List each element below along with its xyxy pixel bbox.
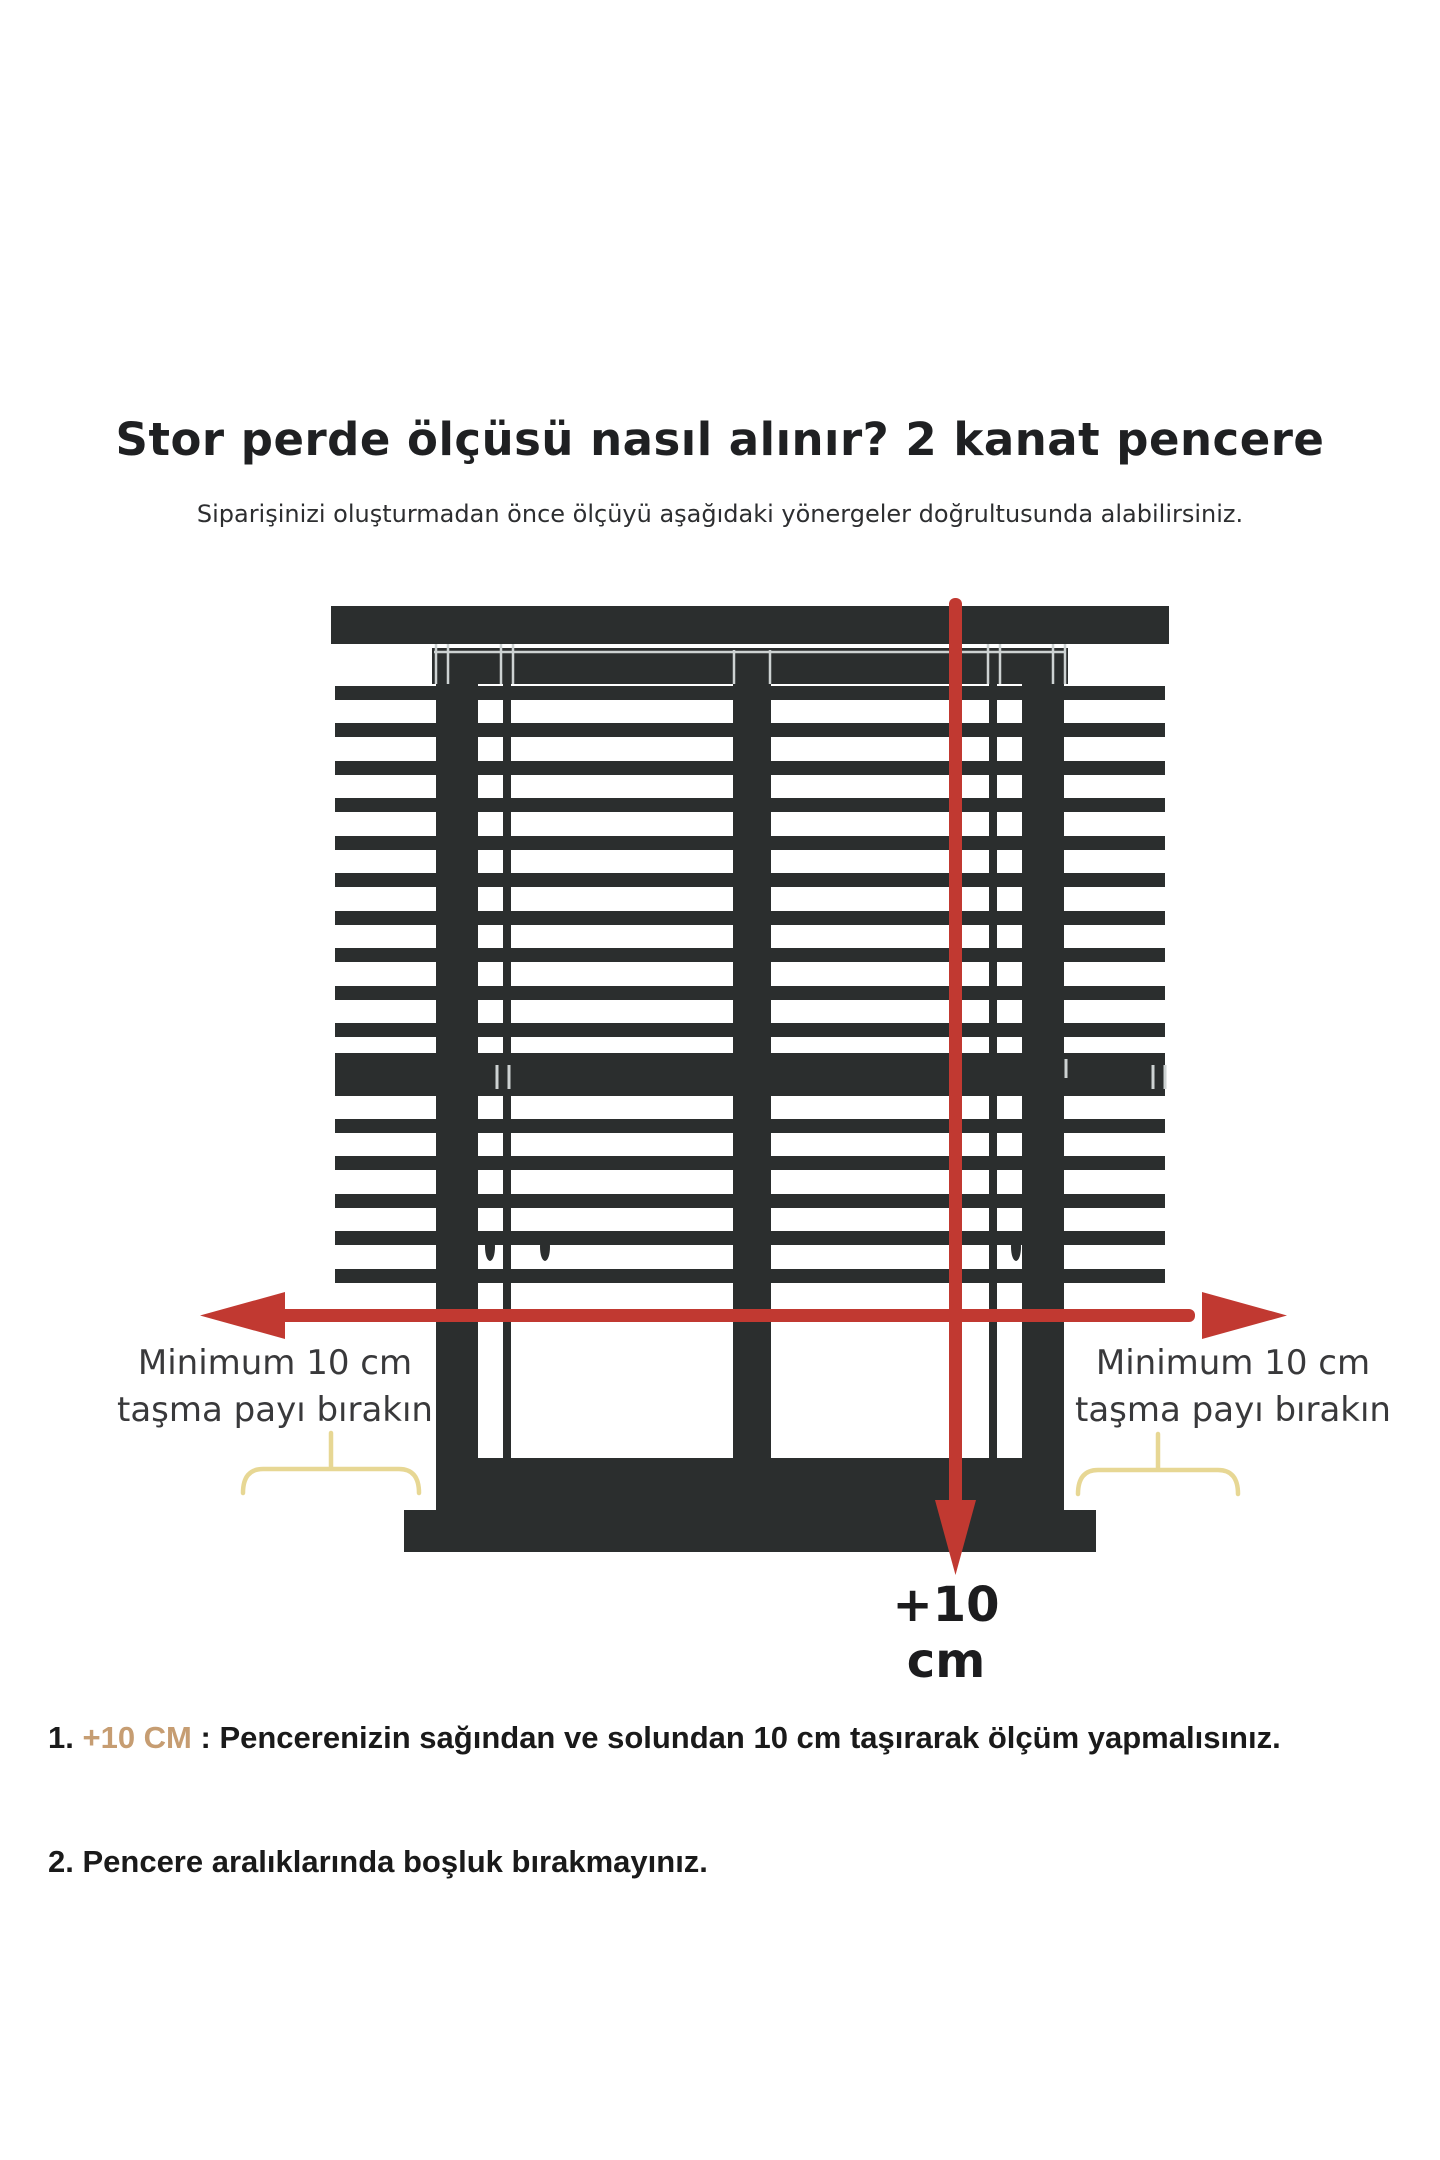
blind-slat bbox=[335, 686, 1165, 700]
right-overhang-bracket bbox=[1078, 1434, 1238, 1494]
left-overhang-bracket bbox=[243, 1433, 419, 1493]
blind-slat bbox=[335, 986, 1165, 1000]
right-overhang-label-line1: Minimum 10 cm bbox=[1053, 1340, 1413, 1387]
blind-slat bbox=[335, 798, 1165, 812]
blind-slat bbox=[335, 836, 1165, 850]
left-overhang-label: Minimum 10 cm taşma payı bırakın bbox=[95, 1340, 455, 1434]
blind-slat bbox=[335, 873, 1165, 887]
width-arrow-shaft bbox=[250, 1309, 1195, 1322]
left-overhang-label-line2: taşma payı bırakın bbox=[95, 1387, 455, 1434]
window-frame bbox=[404, 648, 1096, 1552]
note-1: 1. +10 CM : Pencerenizin sağından ve sol… bbox=[48, 1717, 1408, 1759]
blind-slat bbox=[335, 1156, 1165, 1170]
right-overhang-label: Minimum 10 cm taşma payı bırakın bbox=[1053, 1340, 1413, 1434]
note-1-highlight: +10 CM bbox=[82, 1720, 191, 1755]
note-1-text: : Pencerenizin sağından ve solundan 10 c… bbox=[192, 1720, 1281, 1755]
note-2-number: 2. bbox=[48, 1844, 82, 1879]
width-arrow-right-head bbox=[1202, 1292, 1287, 1339]
blind-slat bbox=[335, 911, 1165, 925]
blind-slat bbox=[335, 1269, 1165, 1283]
width-arrow-left-head bbox=[200, 1292, 285, 1339]
blind-slat bbox=[335, 948, 1165, 962]
cord-pull bbox=[485, 1233, 495, 1261]
blind-slat bbox=[335, 1194, 1165, 1208]
blind-headrail bbox=[331, 606, 1169, 644]
blind-slat bbox=[335, 723, 1165, 737]
right-overhang-label-line2: taşma payı bırakın bbox=[1053, 1387, 1413, 1434]
cord-pull bbox=[540, 1233, 550, 1261]
blind-bottom-rail-slat bbox=[335, 1053, 1165, 1096]
note-2: 2. Pencere aralıklarında boşluk bırakmay… bbox=[48, 1841, 1408, 1883]
left-overhang-label-line1: Minimum 10 cm bbox=[95, 1340, 455, 1387]
blind-slat bbox=[335, 1231, 1165, 1245]
note-1-number: 1. bbox=[48, 1720, 82, 1755]
measurement-guide-page: Stor perde ölçüsü nasıl alınır? 2 kanat … bbox=[0, 0, 1440, 2160]
blind-slat bbox=[335, 761, 1165, 775]
cord-pull bbox=[1011, 1233, 1021, 1261]
blind-slat bbox=[335, 1119, 1165, 1133]
height-arrow-shaft bbox=[949, 598, 962, 1510]
note-2-text: Pencere aralıklarında boşluk bırakmayını… bbox=[82, 1844, 707, 1879]
measurement-notes: 1. +10 CM : Pencerenizin sağından ve sol… bbox=[48, 1645, 1408, 1965]
window-sill bbox=[404, 1510, 1096, 1552]
blind-slat bbox=[335, 1023, 1165, 1037]
